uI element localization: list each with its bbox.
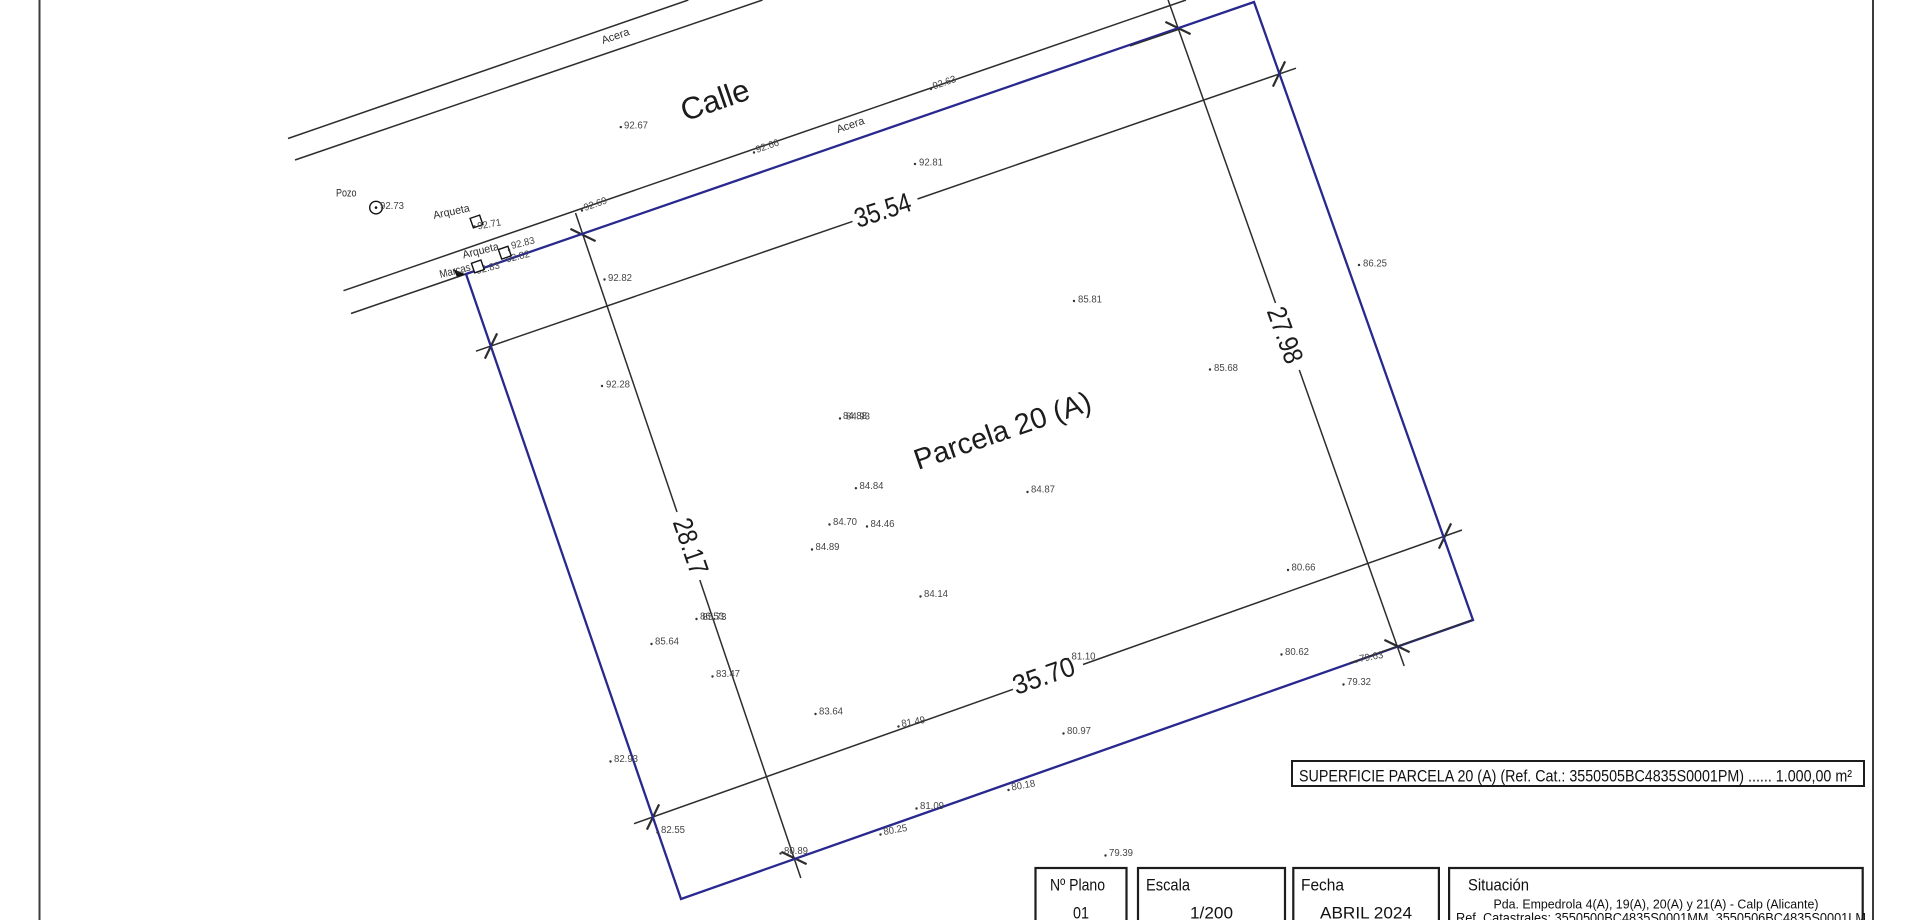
svg-text:79.39: 79.39: [1109, 848, 1133, 859]
svg-text:81.09: 81.09: [920, 801, 944, 812]
svg-text:92.81: 92.81: [919, 158, 943, 169]
svg-text:80.89: 80.89: [784, 846, 808, 857]
svg-text:84.84: 84.84: [860, 481, 884, 492]
svg-text:85.68: 85.68: [1214, 363, 1238, 374]
svg-text:84.87: 84.87: [1031, 485, 1055, 496]
svg-text:1/200: 1/200: [1190, 904, 1233, 920]
svg-text:SUPERFICIE PARCELA 20 (A) (Ref: SUPERFICIE PARCELA 20 (A) (Ref. Cat.: 35…: [1299, 768, 1852, 786]
svg-text:82.55: 82.55: [661, 825, 685, 836]
svg-text:Nº Plano: Nº Plano: [1050, 876, 1105, 895]
svg-text:Fecha: Fecha: [1301, 876, 1344, 895]
svg-text:83.47: 83.47: [716, 669, 740, 680]
svg-text:80.62: 80.62: [1285, 647, 1309, 658]
svg-text:82.93: 82.93: [614, 754, 638, 765]
svg-text:84.89: 84.89: [816, 542, 840, 553]
svg-text:84.14: 84.14: [924, 589, 948, 600]
svg-text:92.82: 92.82: [608, 273, 632, 284]
svg-text:92.73: 92.73: [380, 201, 404, 212]
svg-text:85.64: 85.64: [655, 637, 679, 648]
svg-text:84.70: 84.70: [833, 517, 857, 528]
svg-text:01: 01: [1073, 904, 1089, 920]
svg-text:81.10: 81.10: [1072, 652, 1096, 663]
svg-text:84.93: 84.93: [846, 412, 870, 423]
svg-text:85.81: 85.81: [1078, 295, 1102, 306]
svg-text:84.46: 84.46: [871, 519, 895, 530]
svg-text:80.97: 80.97: [1067, 726, 1091, 737]
svg-text:92.67: 92.67: [624, 121, 648, 132]
svg-text:ABRIL 2024: ABRIL 2024: [1320, 904, 1412, 920]
svg-text:92.28: 92.28: [606, 380, 630, 391]
svg-text:Pda. Empedrola 4(A), 19(A), 20: Pda. Empedrola 4(A), 19(A), 20(A) y 21(A…: [1494, 897, 1819, 912]
svg-text:Pozo: Pozo: [336, 188, 357, 200]
svg-text:86.25: 86.25: [1363, 259, 1387, 270]
svg-text:80.66: 80.66: [1292, 563, 1316, 574]
svg-text:Escala: Escala: [1146, 876, 1190, 895]
svg-text:Situación: Situación: [1468, 876, 1529, 895]
svg-text:83.64: 83.64: [819, 707, 843, 718]
svg-text:Ref. Catastrales: 3550500BC483: Ref. Catastrales: 3550500BC4835S0001MM, …: [1456, 910, 1866, 920]
svg-text:79.32: 79.32: [1347, 677, 1371, 688]
svg-text:85.73: 85.73: [703, 612, 727, 623]
